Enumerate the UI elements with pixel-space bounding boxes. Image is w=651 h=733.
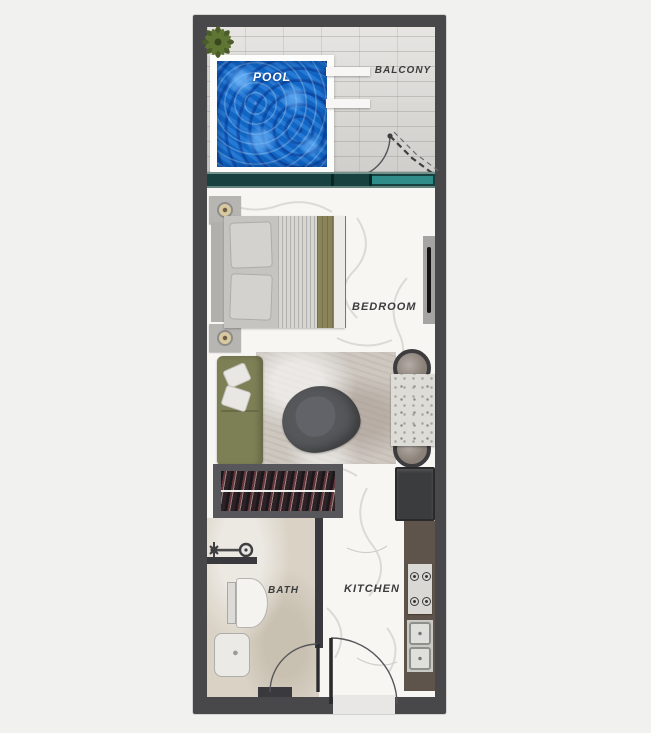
burner-icon bbox=[410, 597, 419, 606]
burner-icon bbox=[410, 572, 419, 581]
pool-label: POOL bbox=[217, 71, 327, 83]
lamp-icon bbox=[217, 330, 233, 346]
window-mullion bbox=[369, 174, 372, 186]
pool-step bbox=[326, 67, 370, 76]
kitchen-label: KITCHEN bbox=[344, 584, 400, 595]
wardrobe-rail bbox=[221, 490, 335, 492]
bed-blanket-stripe bbox=[317, 216, 334, 328]
nightstand bbox=[209, 324, 241, 352]
burner-icon bbox=[422, 597, 431, 606]
entry-door-swing bbox=[327, 634, 401, 708]
pillow bbox=[229, 221, 273, 268]
vanity-sink bbox=[214, 633, 250, 677]
bath-label: BATH bbox=[268, 586, 299, 596]
sink-basin bbox=[409, 622, 431, 645]
interior-wall bbox=[315, 518, 323, 648]
bed-pillows bbox=[224, 216, 278, 328]
bed-headboard bbox=[211, 222, 224, 322]
swimming-pool: POOL bbox=[217, 61, 327, 167]
window-mullion bbox=[331, 174, 334, 186]
lounge-chair-seat bbox=[293, 394, 338, 439]
pillow bbox=[229, 273, 273, 320]
toilet-tank bbox=[227, 582, 236, 624]
burner-icon bbox=[422, 572, 431, 581]
bed-edge bbox=[334, 216, 345, 328]
tv-wall-panel bbox=[423, 236, 435, 324]
bed-blanket bbox=[278, 216, 317, 328]
pool-step bbox=[326, 99, 370, 108]
cooktop bbox=[408, 564, 432, 614]
sofa bbox=[217, 356, 263, 466]
shower-head-icon bbox=[209, 539, 257, 561]
sink-basin bbox=[409, 647, 431, 670]
sliding-door-pane bbox=[372, 176, 433, 184]
kitchen-sink bbox=[407, 620, 433, 672]
palm-plant-icon bbox=[194, 18, 242, 66]
tv-icon bbox=[427, 247, 431, 313]
dining-table bbox=[391, 374, 435, 446]
floorplan-canvas: POOL BALCONY bbox=[0, 0, 651, 733]
double-bed bbox=[224, 216, 345, 328]
balcony-label: BALCONY bbox=[368, 66, 438, 76]
wardrobe bbox=[213, 464, 343, 518]
bath-door-swing bbox=[260, 636, 322, 696]
fridge bbox=[395, 467, 435, 521]
bedroom-label: BEDROOM bbox=[352, 302, 416, 313]
window-wall bbox=[207, 172, 435, 188]
throw-pillow bbox=[220, 384, 251, 412]
